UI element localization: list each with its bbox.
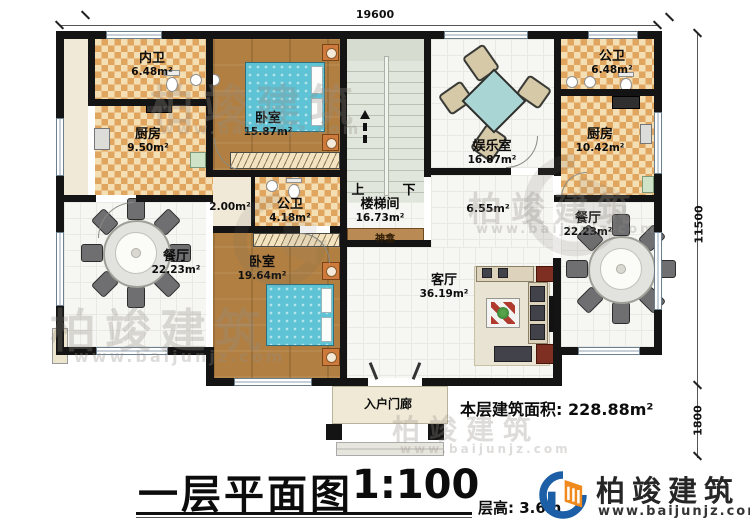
game-table	[461, 68, 526, 133]
wall	[88, 31, 95, 106]
brand-site: www.baijunjz.com	[598, 504, 750, 519]
dining-chair	[81, 244, 103, 262]
window	[56, 118, 64, 176]
wall	[88, 99, 213, 106]
wall	[56, 31, 64, 355]
window	[654, 232, 662, 310]
window	[234, 378, 312, 386]
window	[106, 31, 162, 39]
room-label-inner-bath: 内卫 6.48m²	[131, 52, 172, 78]
corridor-floor	[64, 39, 88, 195]
floor-area-value: 228.88m²	[568, 400, 653, 419]
room-label-dining-left: 餐厅 22.23m²	[152, 250, 201, 276]
window	[96, 347, 168, 355]
wall	[340, 31, 347, 233]
dim-top-label: 19600	[330, 8, 420, 21]
plant	[497, 307, 509, 319]
toilet	[166, 77, 178, 92]
sofa-pillow	[498, 268, 508, 278]
sink	[566, 76, 578, 88]
toilet-tank	[286, 178, 302, 183]
wall	[136, 195, 213, 202]
watermark-logo-icon	[230, 190, 330, 290]
room-label-bedroom-top: 卧室 15.87m²	[244, 112, 293, 138]
porch-post	[428, 424, 444, 440]
room-label-kitchen-left: 厨房 9.50m²	[127, 128, 168, 154]
bed-pillow	[311, 66, 323, 94]
nightstand	[322, 44, 339, 61]
dining-chair	[566, 260, 588, 278]
room-label-living: 客厅 36.19m²	[420, 274, 469, 300]
dim-line-top	[60, 25, 658, 26]
bed-pillow	[311, 98, 323, 126]
kitchen-sink	[94, 128, 110, 150]
room-label-public-bath-topright: 公卫 6.48m²	[591, 50, 632, 76]
window	[56, 232, 64, 306]
watermark-logo-icon	[520, 150, 630, 260]
window	[654, 112, 662, 174]
sofa-bench	[494, 346, 532, 362]
wall	[553, 258, 561, 386]
hall-area-label: 6.55m²	[466, 202, 509, 215]
stair-stringer	[384, 56, 389, 196]
nightstand	[322, 134, 339, 151]
room-label-stairwell: 楼梯间 16.73m²	[356, 198, 405, 224]
window	[588, 31, 638, 39]
stair-direction-arrow	[360, 110, 370, 119]
stair-arrow-dash	[363, 135, 367, 143]
wall	[56, 195, 96, 202]
dining-chair	[612, 302, 630, 324]
title-underline-thin	[136, 517, 472, 518]
porch-post	[326, 424, 342, 440]
tv	[549, 296, 554, 332]
brand-logo-icon	[538, 468, 588, 522]
shrine-label: 神龛	[375, 230, 395, 245]
floor-area-label: 本层建筑面积:	[460, 400, 562, 419]
window	[578, 347, 640, 355]
bed-pillow	[321, 317, 332, 342]
floor-area-line: 本层建筑面积: 228.88m²	[460, 396, 653, 420]
fridge	[642, 176, 654, 193]
stair-down-label: 下	[402, 179, 415, 198]
bed-pillow	[321, 288, 332, 313]
stair-up-label: 上	[351, 179, 364, 198]
dining-table-hub	[616, 264, 626, 274]
wall	[424, 31, 431, 177]
sofa-cushion	[530, 286, 545, 302]
sink	[190, 74, 202, 86]
wall	[330, 226, 340, 233]
fridge	[190, 152, 206, 168]
wall	[213, 170, 340, 177]
sofa-cushion	[530, 305, 545, 321]
porch-label: 入户门廊	[364, 395, 412, 412]
dining-table-hub	[131, 248, 141, 258]
wall	[561, 89, 654, 96]
plan-scale: 1:100	[352, 462, 479, 508]
corner-leader	[665, 12, 674, 21]
wall	[340, 233, 347, 386]
stair-arrow-dash	[363, 123, 367, 131]
floor-plan-sheet: 内卫 6.48m² 厨房 9.50m² 卧室 15.87m² 公卫 6.48m²…	[0, 0, 750, 531]
sofa-cushion	[530, 324, 545, 340]
kitchen-sink	[640, 124, 652, 144]
title-underline	[136, 512, 472, 515]
porch-steps	[336, 442, 444, 456]
sofa-pillow	[482, 268, 492, 278]
dining-chair	[127, 286, 145, 308]
window	[444, 31, 528, 39]
corner-leader	[81, 10, 90, 19]
sink	[584, 76, 596, 88]
wall	[431, 168, 511, 175]
nightstand	[322, 348, 340, 366]
dim-right-porch-label: 1800	[692, 403, 705, 439]
stove	[612, 96, 640, 109]
room-label-entertainment: 娱乐室 16.87m²	[468, 140, 517, 166]
wall	[422, 378, 562, 386]
dim-right-main-label: 11500	[693, 202, 706, 248]
